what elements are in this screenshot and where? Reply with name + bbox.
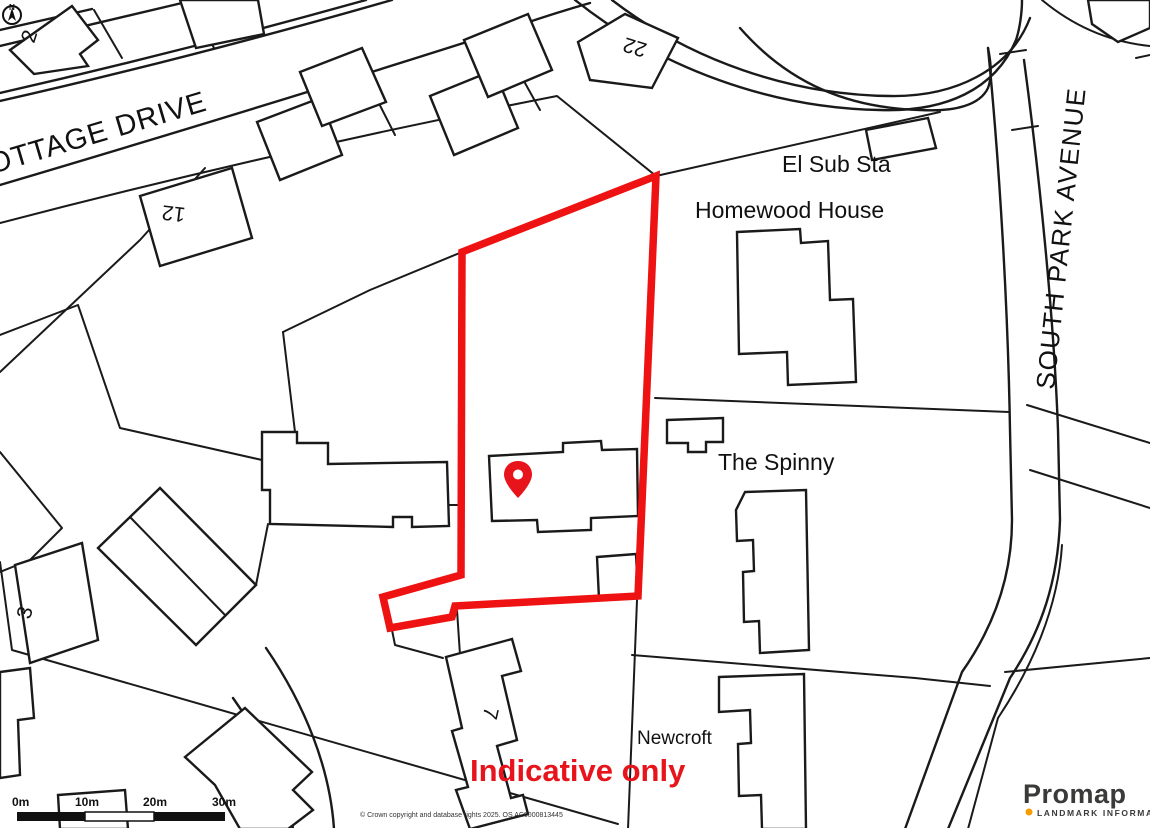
building-the-spinny [736,490,809,653]
building-newcroft [719,674,806,828]
building [180,0,264,48]
scale-label-10m: 10m [75,795,99,809]
parcel-line [632,655,990,686]
building [667,418,723,452]
parcel-line [1027,405,1150,443]
label-the-spinny: The Spinny [718,449,835,475]
house-number-12: 12 [161,200,187,226]
building [262,432,449,527]
label-el-sub-sta: El Sub Sta [782,151,891,177]
copyright-notice: © Crown copyright and database rights 20… [360,811,563,819]
scale-label-0m: 0m [12,795,29,809]
parcel-line [1005,658,1150,672]
parcel-line [628,600,637,828]
road-dash [1012,126,1038,130]
building-no7 [446,639,528,828]
parcel-line [256,524,268,585]
building-no3 [15,543,98,663]
building [1088,0,1150,42]
road-dash [1136,55,1150,58]
promap-tagline: LANDMARK INFORMATION [1037,808,1150,818]
street-label-south-park-avenue: SOUTH PARK AVENUE [1030,86,1092,391]
building [0,668,34,778]
road-bend [612,0,1030,96]
parcel-line [457,610,460,655]
road-kerb [948,60,1060,828]
building-homewood-house [737,229,856,385]
north-arrow-icon: N [3,3,21,24]
promap-export: OTTAGE DRIVE SOUTH PARK AVENUE El Sub St… [0,0,1150,828]
street-label-cottage-drive: OTTAGE DRIVE [0,86,210,181]
map-canvas: OTTAGE DRIVE SOUTH PARK AVENUE El Sub St… [0,0,1150,828]
label-newcroft: Newcroft [637,728,713,749]
scale-label-20m: 20m [143,795,167,809]
parcel-line [283,332,295,432]
parcel-line [283,252,462,332]
scale-label-30m: 30m [212,795,236,809]
parcel-line [1030,470,1150,508]
building [597,554,638,599]
parcel-line [655,398,1009,412]
parcel-line [0,305,262,460]
road-dash [1000,50,1026,54]
label-homewood-house: Homewood House [695,197,884,223]
indicative-only-annotation: Indicative only [470,753,686,788]
promap-orange-dot-icon [1026,809,1033,816]
promap-logo: Promap LANDMARK INFORMATION [1023,779,1150,818]
building [185,708,313,828]
parcel-line [392,630,443,658]
promap-wordmark: Promap [1023,779,1127,809]
